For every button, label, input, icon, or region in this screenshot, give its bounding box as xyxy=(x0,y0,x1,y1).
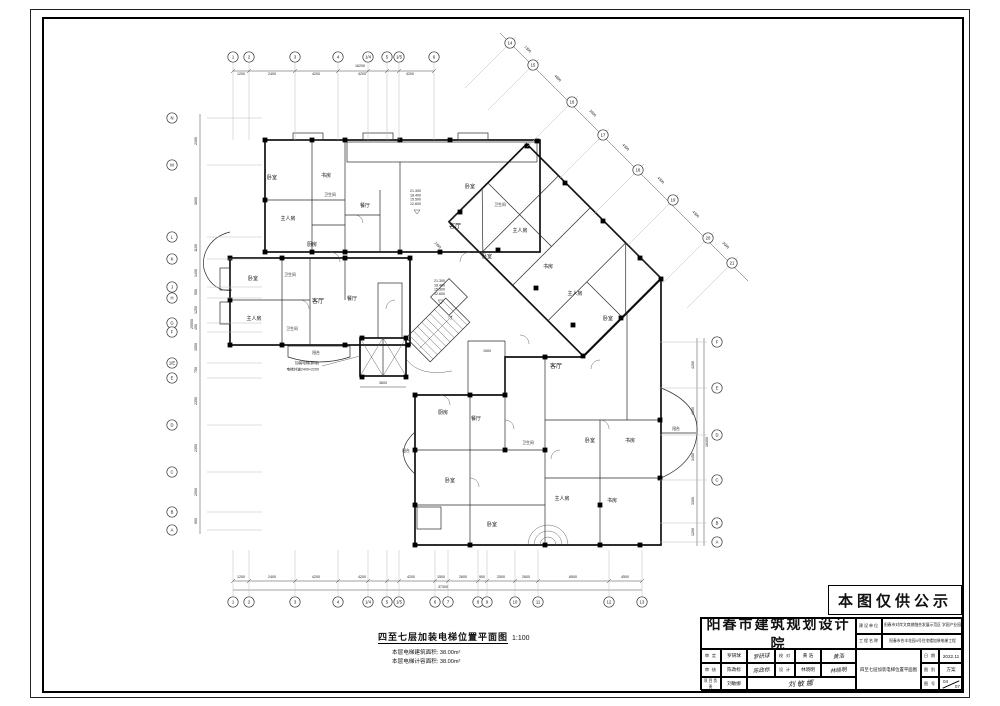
svg-text:1/5: 1/5 xyxy=(396,600,402,605)
svg-text:21: 21 xyxy=(730,261,735,266)
lead-name: 刘敏娜 xyxy=(721,677,747,691)
design-signature: 林晓明 xyxy=(821,663,856,677)
svg-text:1300: 1300 xyxy=(523,45,531,53)
svg-text:4500: 4500 xyxy=(621,575,629,579)
svg-text:13: 13 xyxy=(640,600,645,605)
svg-text:书房: 书房 xyxy=(321,172,331,179)
svg-text:卫生间: 卫生间 xyxy=(494,202,506,207)
svg-text:J: J xyxy=(171,285,173,290)
date-label: 日 期 xyxy=(921,649,939,663)
svg-text:1/4: 1/4 xyxy=(365,55,371,60)
project-value: 阳春市合丰花园4号住宅楼加装电梯工程 xyxy=(882,634,963,650)
svg-text:4200: 4200 xyxy=(312,72,320,76)
client-label: 建设单位 xyxy=(856,618,882,634)
svg-text:1500: 1500 xyxy=(483,349,491,353)
design-name: 林晓明 xyxy=(795,663,821,677)
svg-text:450: 450 xyxy=(194,324,198,330)
svg-text:4300: 4300 xyxy=(621,143,629,151)
fan-steps xyxy=(528,525,568,545)
svg-text:37300: 37300 xyxy=(438,585,448,589)
svg-text:卧室: 卧室 xyxy=(482,253,492,260)
proof-name: 黄 浩 xyxy=(795,649,821,663)
svg-text:书房: 书房 xyxy=(607,497,617,504)
proof-signature: 黄浩 xyxy=(821,649,856,663)
svg-text:1250: 1250 xyxy=(194,306,198,314)
svg-text:17: 17 xyxy=(601,133,606,138)
svg-text:900: 900 xyxy=(479,575,485,579)
svg-text:主人房: 主人房 xyxy=(554,495,569,502)
balcony-hatch-wing-1 xyxy=(590,243,661,314)
svg-text:客厅: 客厅 xyxy=(550,362,562,370)
svg-text:G: G xyxy=(170,321,173,326)
svg-text:C: C xyxy=(715,478,718,483)
svg-text:卧室: 卧室 xyxy=(248,275,258,282)
publicity-note: 本图仅供公示 xyxy=(828,585,962,615)
svg-text:2600: 2600 xyxy=(459,575,467,579)
svg-text:C: C xyxy=(170,470,173,475)
block-upper-wing xyxy=(203,133,540,290)
svg-text:B: B xyxy=(171,510,174,515)
svg-text:阳台: 阳台 xyxy=(402,448,410,453)
balcony-hatch-wing-2 xyxy=(449,188,516,255)
svg-text:3900: 3900 xyxy=(588,109,596,117)
svg-text:1/E: 1/E xyxy=(169,361,175,366)
svg-text:A: A xyxy=(716,540,719,545)
elevator-core xyxy=(322,279,467,387)
drawing-caption: 四至七层加装电梯位置平面图1:100 本层电梯建筑面积: 38.00m² 本层电… xyxy=(378,627,588,666)
svg-text:3450: 3450 xyxy=(691,453,695,461)
svg-text:4200: 4200 xyxy=(691,361,695,369)
svg-text:4200: 4200 xyxy=(312,575,320,579)
drawing-title: 四至七层加装电梯位置平面图 xyxy=(378,632,508,644)
svg-text:D: D xyxy=(170,423,173,428)
svg-text:4200: 4200 xyxy=(407,575,415,579)
svg-text:14: 14 xyxy=(508,41,513,46)
svg-text:20550: 20550 xyxy=(190,319,194,329)
svg-text:A: A xyxy=(171,528,174,533)
svg-text:3000: 3000 xyxy=(721,241,729,249)
date-value: 2022.11 xyxy=(939,649,963,663)
svg-text:4300: 4300 xyxy=(656,176,664,184)
svg-text:1200: 1200 xyxy=(237,72,245,76)
svg-text:2350: 2350 xyxy=(433,241,441,249)
corridor-arc xyxy=(407,360,452,373)
svg-text:4200: 4200 xyxy=(406,72,414,76)
balcony-hatch-top xyxy=(347,142,537,162)
svg-text:F: F xyxy=(716,340,719,345)
type-value: 方案 xyxy=(939,663,963,677)
drawing-name-cell: 四至七层加装电梯位置平面图 xyxy=(856,649,921,691)
svg-text:11: 11 xyxy=(536,600,541,605)
svg-text:主人房: 主人房 xyxy=(246,315,261,322)
svg-text:900: 900 xyxy=(194,518,198,524)
svg-text:1/4: 1/4 xyxy=(365,600,371,605)
svg-text:H: H xyxy=(170,296,173,301)
svg-text:10: 10 xyxy=(513,600,518,605)
svg-text:550: 550 xyxy=(194,289,198,295)
balcony-hatch-bottom xyxy=(417,507,441,529)
drawing-scale: 1:100 xyxy=(512,635,530,642)
lead-signature: 刘敏娜 xyxy=(747,677,856,691)
svg-text:主人房: 主人房 xyxy=(567,290,582,297)
svg-text:卫生间: 卫生间 xyxy=(324,192,336,197)
no-label: 图 号 xyxy=(921,677,939,691)
svg-text:2500: 2500 xyxy=(497,575,505,579)
svg-text:卧室: 卧室 xyxy=(267,174,277,181)
svg-text:6500: 6500 xyxy=(569,575,577,579)
no-value: 0407 xyxy=(939,677,963,691)
svg-text:书房: 书房 xyxy=(543,263,553,270)
svg-text:1400: 1400 xyxy=(194,269,198,277)
title-block: 阳春市建筑规划设计院 建设单位 阳春市对岸文商旅融合发展示范区 学园产业园 工程… xyxy=(700,617,962,690)
svg-text:餐厅: 餐厅 xyxy=(471,415,481,422)
check-signature: 陈政标 xyxy=(747,663,775,677)
svg-text:主人房: 主人房 xyxy=(512,227,527,234)
svg-text:卫生间: 卫生间 xyxy=(522,440,534,445)
svg-text:12.600: 12.600 xyxy=(410,202,421,206)
project-label: 工程名称 xyxy=(856,634,882,650)
approve-label: 审 定 xyxy=(701,649,721,663)
svg-text:M: M xyxy=(170,163,174,168)
svg-text:1550: 1550 xyxy=(194,343,198,351)
generated-annotations: 卧室书房卫生间主人房餐厅厨房客厅卧室卫生间主人房卧室书房主人房卧室卧室卫生间主人… xyxy=(167,37,738,607)
svg-text:1/5: 1/5 xyxy=(396,55,402,60)
svg-text:卧室: 卧室 xyxy=(465,183,475,190)
svg-text:3300: 3300 xyxy=(691,497,695,505)
svg-text:B: B xyxy=(716,521,719,526)
proof-label: 校 对 xyxy=(775,649,795,663)
block-diagonal-wing xyxy=(449,144,661,356)
svg-text:2350: 2350 xyxy=(194,444,198,452)
svg-text:1200: 1200 xyxy=(237,575,245,579)
svg-text:电梯井道2400×2200: 电梯井道2400×2200 xyxy=(287,367,319,372)
svg-text:12.600: 12.600 xyxy=(434,292,445,296)
svg-text:E: E xyxy=(716,386,719,391)
svg-text:4200: 4200 xyxy=(358,72,366,76)
svg-text:卧室: 卧室 xyxy=(445,477,455,484)
svg-text:加装电梯(新增): 加装电梯(新增) xyxy=(295,360,319,365)
balcony-hatch-left xyxy=(404,432,416,474)
svg-text:卫生间: 卫生间 xyxy=(286,326,298,331)
type-label: 图 别 xyxy=(921,663,939,677)
svg-text:卫生间: 卫生间 xyxy=(284,272,296,277)
svg-text:2600: 2600 xyxy=(522,575,530,579)
svg-text:阳台: 阳台 xyxy=(672,426,680,431)
svg-text:餐厅: 餐厅 xyxy=(347,295,357,302)
client-value: 阳春市对岸文商旅融合发展示范区 学园产业园 xyxy=(882,618,963,634)
svg-text:客厅: 客厅 xyxy=(312,297,324,305)
bay-balcony-left xyxy=(203,232,232,290)
design-label: 设 计 xyxy=(775,663,795,677)
svg-text:厨房: 厨房 xyxy=(307,241,317,248)
check-label: 审 核 xyxy=(701,663,721,677)
existing-shaft-hatch xyxy=(378,283,402,338)
svg-text:16300: 16300 xyxy=(705,437,709,447)
svg-text:2400: 2400 xyxy=(268,72,276,76)
svg-text:4200: 4200 xyxy=(358,575,366,579)
svg-text:4150: 4150 xyxy=(691,407,695,415)
svg-text:12: 12 xyxy=(607,600,612,605)
institute-name: 阳春市建筑规划设计院 xyxy=(701,618,856,649)
svg-text:2300: 2300 xyxy=(194,137,198,145)
svg-text:K: K xyxy=(171,257,174,262)
svg-text:主人房: 主人房 xyxy=(280,215,295,222)
area-note-1: 本层电梯建筑面积: 38.00m² xyxy=(392,649,588,658)
svg-text:3600: 3600 xyxy=(194,197,198,205)
svg-text:1500: 1500 xyxy=(437,575,445,579)
svg-text:书房: 书房 xyxy=(625,437,635,444)
svg-text:卧室: 卧室 xyxy=(585,437,595,444)
svg-text:4800: 4800 xyxy=(553,74,561,82)
svg-text:18: 18 xyxy=(636,168,641,173)
svg-text:15: 15 xyxy=(531,63,536,68)
svg-text:D: D xyxy=(715,433,718,438)
svg-text:餐厅: 餐厅 xyxy=(360,202,370,209)
svg-text:2000: 2000 xyxy=(194,488,198,496)
approve-name: 罗研球 xyxy=(721,649,747,663)
svg-text:2400: 2400 xyxy=(268,575,276,579)
svg-text:19: 19 xyxy=(671,198,676,203)
approve-signature: 罗研球 xyxy=(747,649,775,663)
svg-text:厨房: 厨房 xyxy=(438,409,448,416)
svg-text:E: E xyxy=(171,376,174,381)
svg-text:750: 750 xyxy=(194,367,198,373)
svg-text:16: 16 xyxy=(570,100,575,105)
lead-label: 项目负责 xyxy=(701,677,721,691)
svg-text:1100: 1100 xyxy=(194,244,198,252)
area-note-2: 本层电梯计容面积: 38.00m² xyxy=(392,658,588,667)
svg-text:4300: 4300 xyxy=(691,210,699,218)
svg-text:2350: 2350 xyxy=(194,397,198,405)
elevator-leader-line xyxy=(322,356,360,366)
svg-text:F: F xyxy=(171,330,174,335)
svg-text:卧室: 卧室 xyxy=(487,521,497,528)
svg-text:阳台: 阳台 xyxy=(312,350,320,355)
svg-text:N: N xyxy=(170,116,173,121)
svg-text:20: 20 xyxy=(706,236,711,241)
block-left-middle xyxy=(220,258,410,362)
svg-text:客厅: 客厅 xyxy=(449,222,461,230)
staircase xyxy=(406,298,470,362)
svg-text:卧室: 卧室 xyxy=(603,315,613,322)
check-name: 陈政标 xyxy=(721,663,747,677)
svg-text:3600: 3600 xyxy=(379,381,387,385)
drawing-sheet: 卧室书房卫生间主人房餐厅厨房客厅卧室卫生间主人房卧室书房主人房卧室卧室卫生间主人… xyxy=(0,0,1000,706)
svg-text:1200: 1200 xyxy=(691,528,695,536)
svg-text:16200: 16200 xyxy=(355,64,365,68)
